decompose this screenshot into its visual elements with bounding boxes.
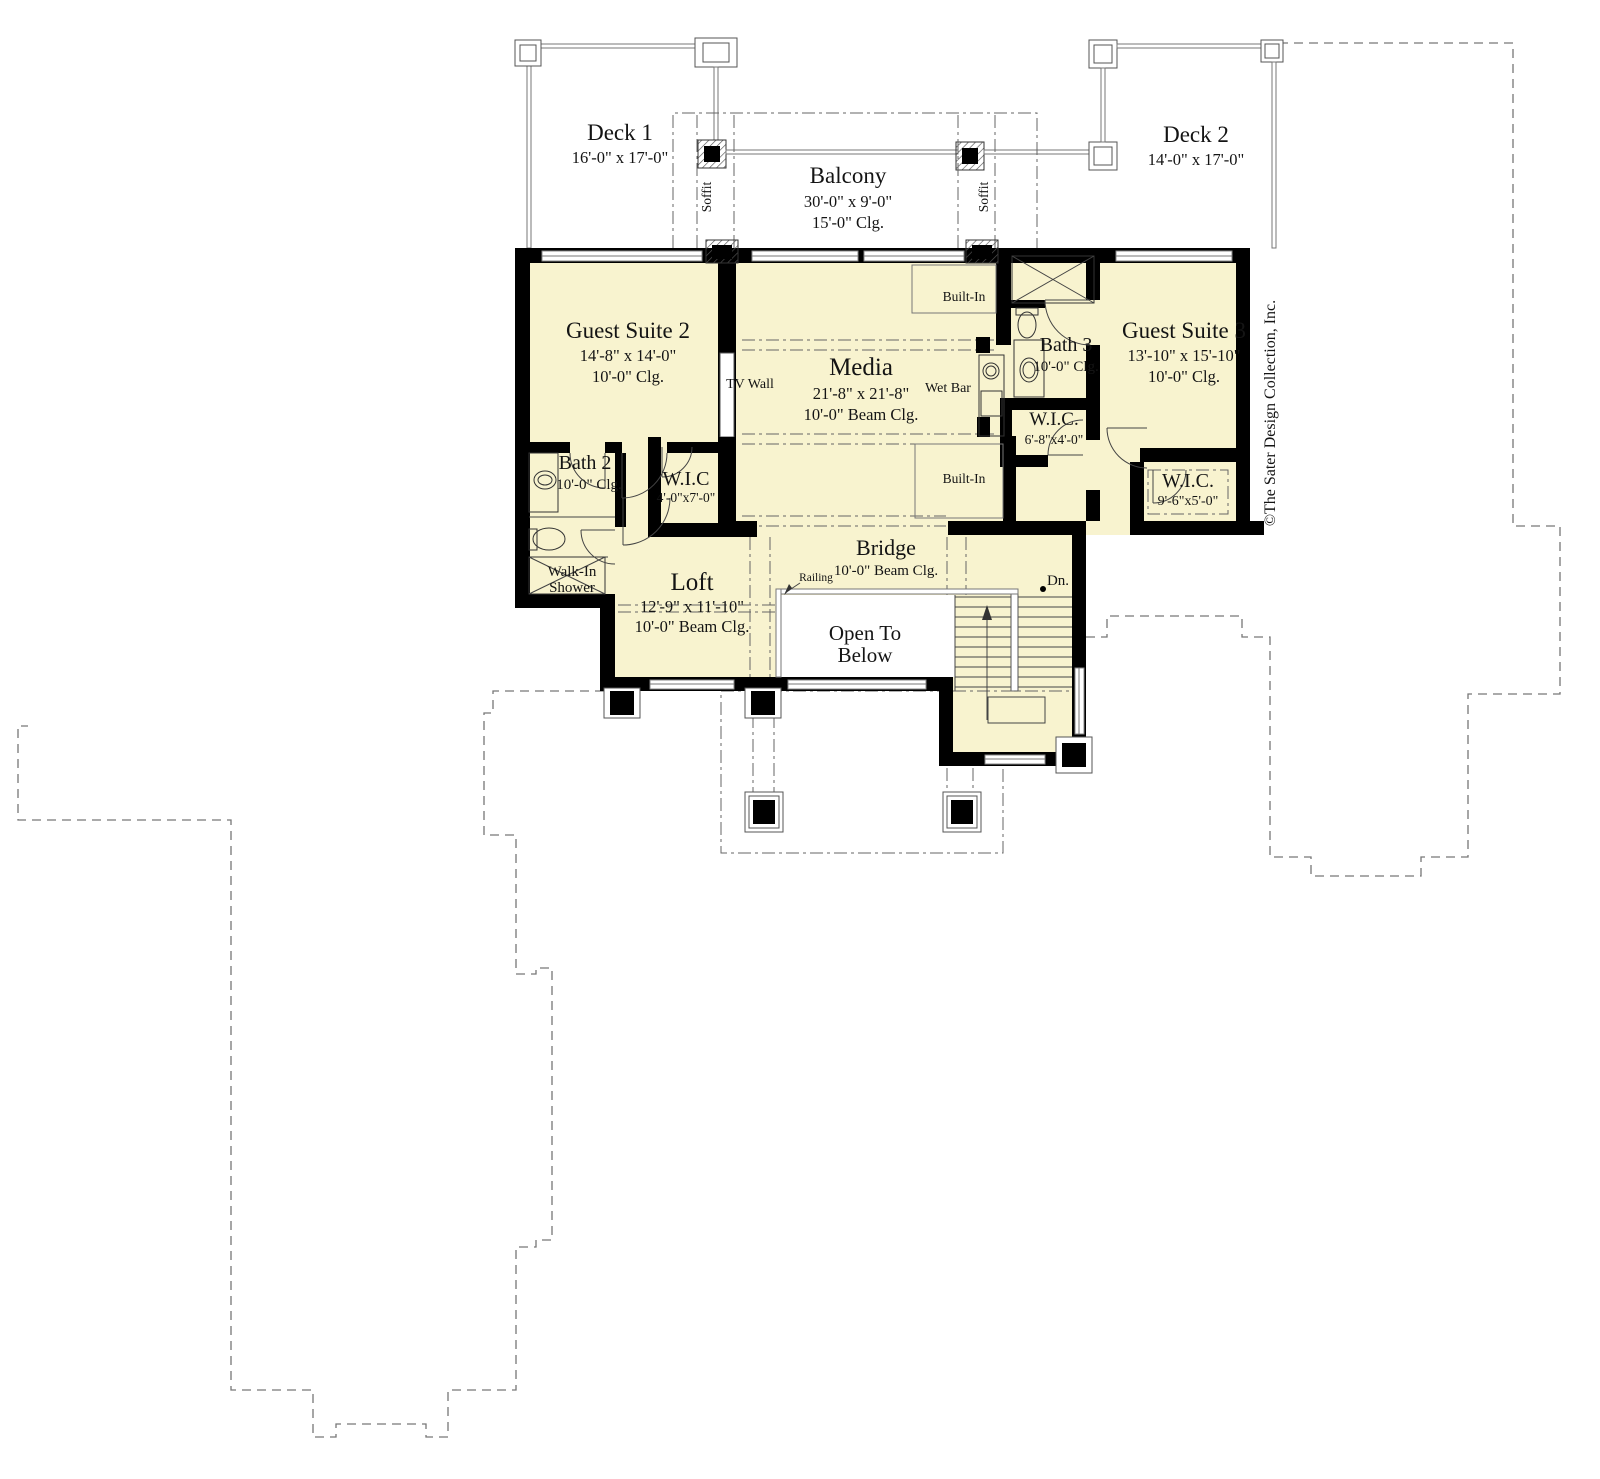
deck1-dims: 16'-0" x 17'-0" — [572, 148, 668, 167]
guest-suite2-label: Guest Suite 2 — [566, 318, 690, 343]
guest-suite3-label: Guest Suite 3 — [1122, 318, 1246, 343]
balcony-ceiling: 15'-0" Clg. — [812, 213, 884, 232]
media-label: Media — [829, 354, 893, 381]
bridge-ceiling: 10'-0" Beam Clg. — [834, 563, 938, 579]
wet-bar-label: Wet Bar — [925, 381, 971, 396]
bridge-label: Bridge — [856, 535, 916, 560]
tv-wall-label: TV Wall — [726, 377, 774, 392]
bath2-label: Bath 2 — [559, 452, 612, 474]
guest-suite3-ceiling: 10'-0" Clg. — [1148, 367, 1220, 386]
bridge-railing — [776, 589, 1018, 594]
floor-plan-page: Deck 1 16'-0" x 17'-0" Balcony 30'-0" x … — [0, 0, 1600, 1479]
wic1-label: W.I.C — [662, 468, 709, 490]
bath3-label: Bath 3 — [1040, 334, 1093, 356]
soffit-left-label: Soffit — [699, 182, 714, 213]
wic2-label: W.I.C. — [1029, 409, 1078, 430]
media-ceiling: 10'-0" Beam Clg. — [804, 405, 919, 424]
walk-in-shower-label-1: Walk-In — [548, 564, 597, 580]
wic1-dims: 4'-0"x7'-0" — [657, 490, 716, 505]
loft-dims: 12'-9" x 11'-10" — [640, 597, 744, 616]
open-to-below-label-2: Below — [838, 643, 894, 667]
bath2-ceiling: 10'-0" Clg. — [556, 477, 622, 493]
open-to-below-label-1: Open To — [829, 621, 901, 645]
deck1-left-rail — [527, 47, 531, 248]
guest-suite2-dims: 14'-8" x 14'-0" — [580, 346, 676, 365]
stair-stringer — [1011, 590, 1018, 691]
tv-wall-recess — [720, 353, 734, 437]
wic2-dims: 6'-8"x4'-0" — [1025, 432, 1084, 447]
built-in-top-label: Built-In — [943, 289, 986, 304]
deck1-label: Deck 1 — [587, 120, 653, 145]
loft-label: Loft — [670, 569, 713, 596]
wic3-dims: 9'-6"x5'-0" — [1158, 494, 1219, 509]
balcony-dims: 30'-0" x 9'-0" — [804, 192, 892, 211]
walk-in-shower-label-2: Shower — [549, 580, 595, 596]
copyright-text: ©The Sater Design Collection, Inc. — [1262, 300, 1279, 526]
loft-ceiling: 10'-0" Beam Clg. — [635, 617, 750, 636]
deck1-top-rail — [527, 44, 697, 48]
deck2-dims: 14'-0" x 17'-0" — [1148, 150, 1244, 169]
guest-suite3-dims: 13'-10" x 15'-10" — [1128, 346, 1241, 365]
balcony-label: Balcony — [810, 163, 887, 188]
bath3-ceiling: 10'-0" Clg. — [1033, 359, 1099, 375]
built-in-bottom-label: Built-In — [943, 471, 986, 486]
down-label: Dn. — [1047, 573, 1069, 589]
guest-suite2-ceiling: 10'-0" Clg. — [592, 367, 664, 386]
open-to-below-railing — [776, 589, 781, 677]
soffit-right-label: Soffit — [976, 182, 991, 213]
floor-plan-svg: Deck 1 16'-0" x 17'-0" Balcony 30'-0" x … — [0, 0, 1600, 1479]
deck2-label: Deck 2 — [1163, 122, 1229, 147]
down-marker-dot — [1040, 586, 1046, 592]
wic3-label: W.I.C. — [1162, 470, 1214, 492]
railing-label: Railing — [799, 572, 833, 584]
media-dims: 21'-8" x 21'-8" — [813, 384, 909, 403]
